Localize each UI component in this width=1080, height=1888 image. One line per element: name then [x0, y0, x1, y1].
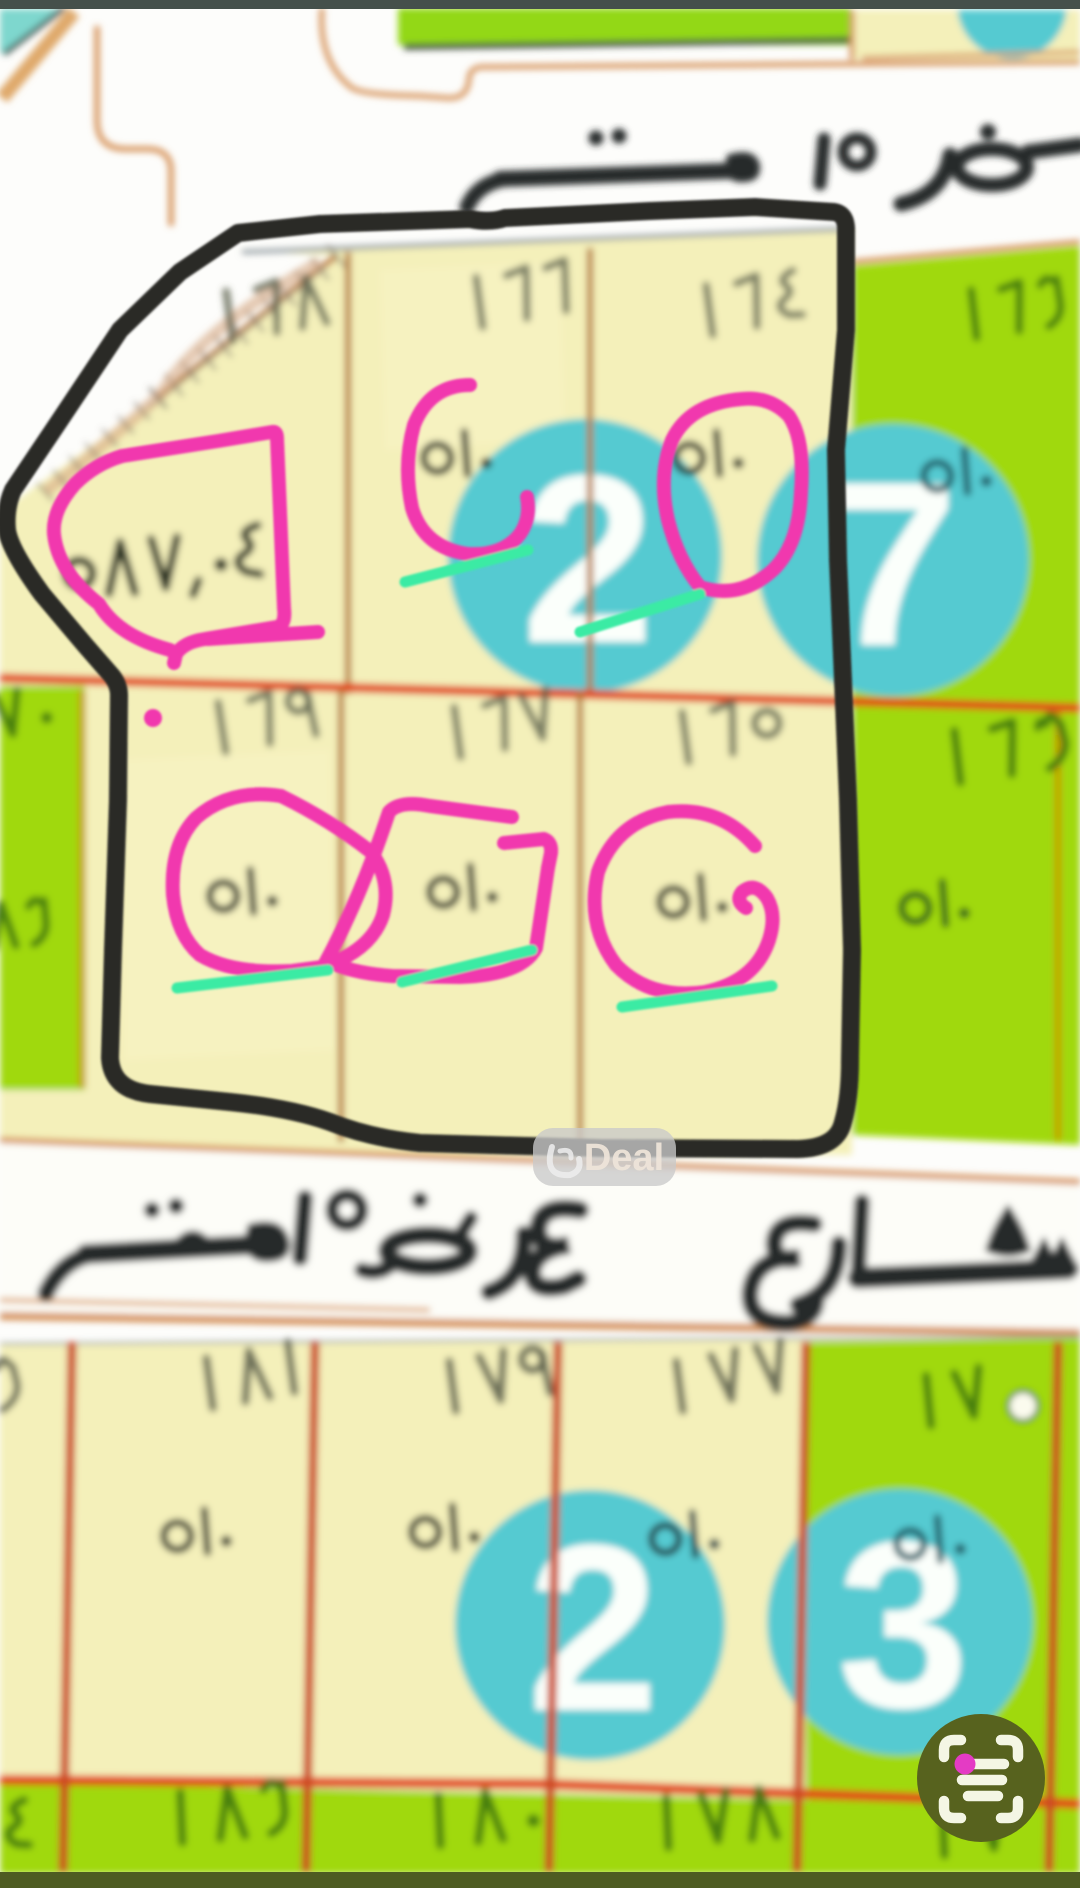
svg-text:Deal: Deal	[584, 1137, 664, 1179]
svg-text:2: 2	[527, 1496, 659, 1761]
